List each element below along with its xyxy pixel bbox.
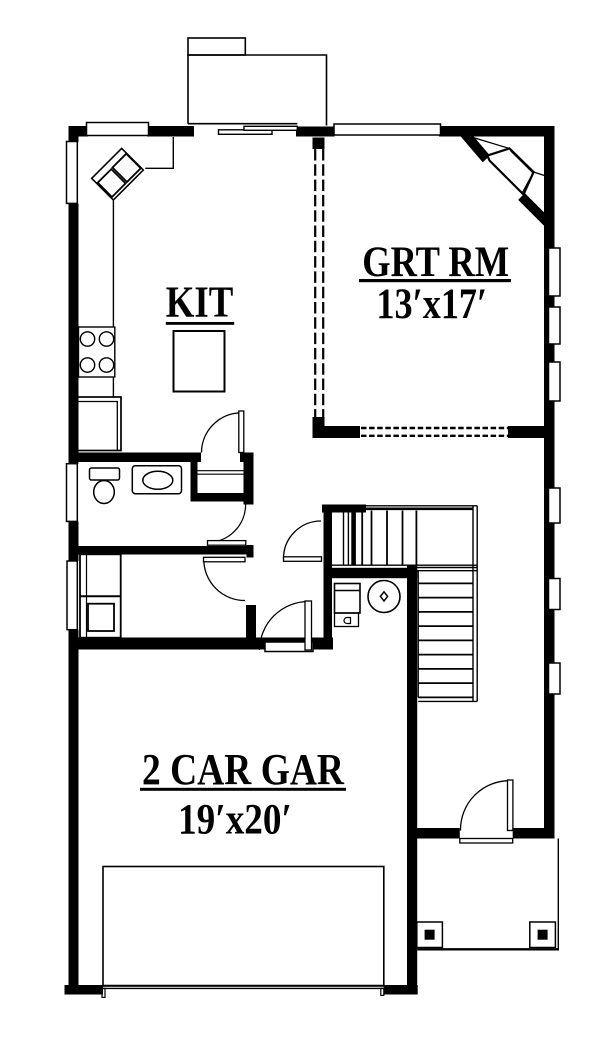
svg-text:19′x20′: 19′x20′ <box>178 797 292 844</box>
svg-text:GRT RM: GRT RM <box>362 239 509 286</box>
svg-text:KIT: KIT <box>166 278 234 327</box>
svg-text:13′x17′: 13′x17′ <box>376 281 487 328</box>
svg-text:2 CAR GAR: 2 CAR GAR <box>142 745 345 794</box>
